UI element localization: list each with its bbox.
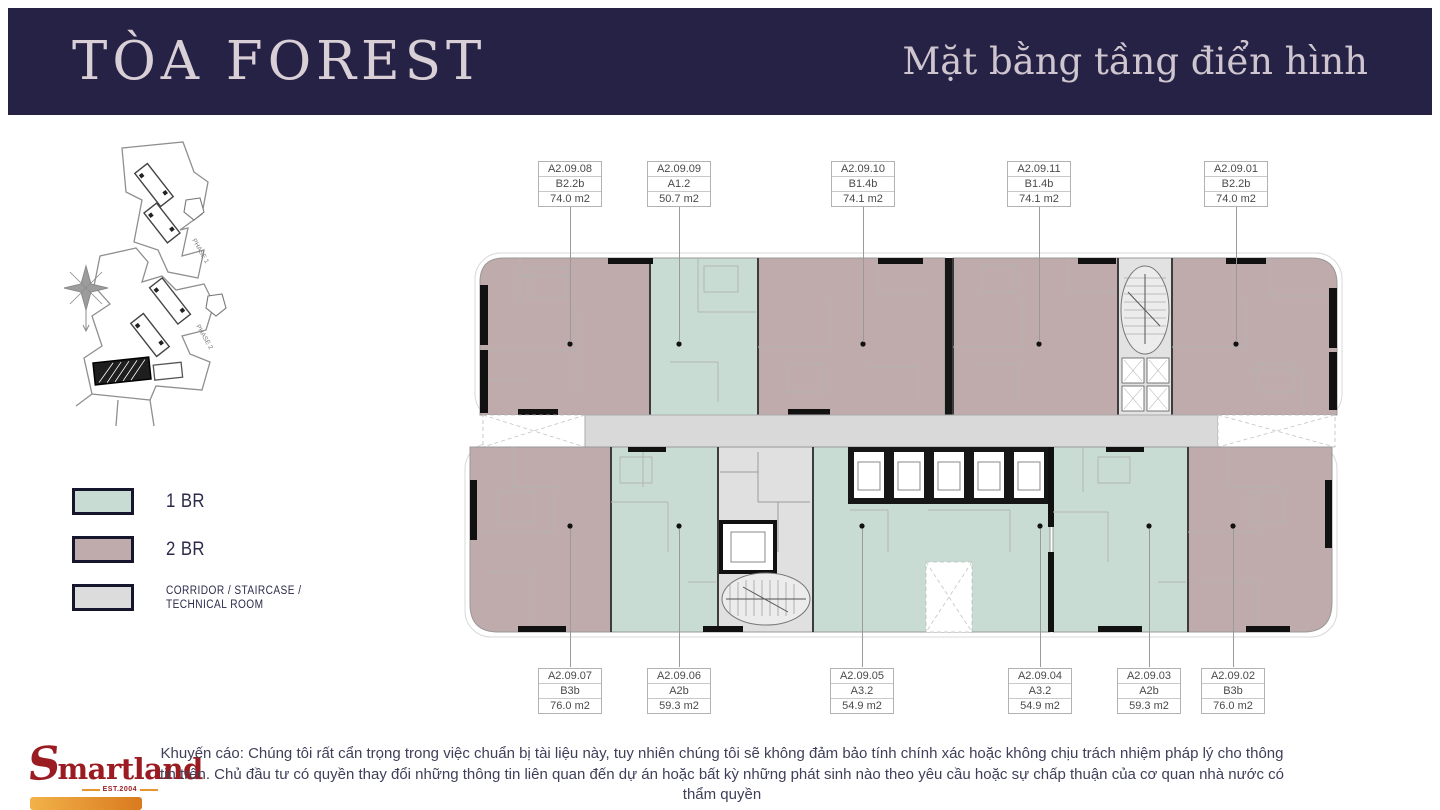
smartland-logo: Smartland EST.2004	[28, 737, 160, 793]
unit-A2-09-06	[611, 447, 718, 632]
leader-line	[570, 529, 571, 667]
unit-id: A2.09.07	[539, 669, 601, 684]
logo-orange-bar	[30, 797, 142, 810]
unit-label-A2-09-08: A2.09.08 B2.2b 74.0 m2	[538, 161, 602, 207]
unit-label-A2-09-09: A2.09.09 A1.2 50.7 m2	[647, 161, 711, 207]
legend-label-corridor: CORRIDOR / STAIRCASE / TECHNICAL ROOM	[166, 584, 320, 612]
unit-area: 54.9 m2	[831, 699, 893, 713]
unit-area: 54.9 m2	[1009, 699, 1071, 713]
unit-label-A2-09-05: A2.09.05 A3.2 54.9 m2	[830, 668, 894, 714]
unit-A2-09-01	[1172, 258, 1337, 415]
leader-line	[679, 206, 680, 342]
unit-id: A2.09.04	[1009, 669, 1071, 684]
unit-type: A3.2	[1009, 684, 1071, 699]
center-void	[926, 562, 972, 632]
legend-swatch-corridor	[72, 584, 134, 611]
unit-label-A2-09-01: A2.09.01 B2.2b 74.0 m2	[1204, 161, 1268, 207]
legend-swatch-1br	[72, 488, 134, 515]
page: TÒA FOREST Mặt bằng tầng điển hình PHASE…	[0, 0, 1440, 810]
unit-type: B1.4b	[832, 177, 894, 192]
unit-A2-09-07	[470, 447, 611, 632]
unit-area: 59.3 m2	[648, 699, 710, 713]
unit-area: 74.0 m2	[539, 192, 601, 206]
site-buildings-phase1: PHASE 1	[135, 164, 210, 266]
unit-A2-09-02	[1188, 447, 1332, 632]
unit-type: B3b	[1202, 684, 1264, 699]
header: TÒA FOREST Mặt bằng tầng điển hình	[8, 8, 1432, 115]
unit-type: B3b	[539, 684, 601, 699]
unit-label-A2-09-06: A2.09.06 A2b 59.3 m2	[647, 668, 711, 714]
unit-id: A2.09.09	[648, 162, 710, 177]
unit-label-A2-09-11: A2.09.11 B1.4b 74.1 m2	[1007, 161, 1071, 207]
unit-area: 74.0 m2	[1205, 192, 1267, 206]
page-title: TÒA FOREST	[72, 31, 486, 92]
unit-type: B2.2b	[539, 177, 601, 192]
unit-label-A2-09-02: A2.09.02 B3b 76.0 m2	[1201, 668, 1265, 714]
leader-line	[1236, 206, 1237, 342]
unit-type: B2.2b	[1205, 177, 1267, 192]
legend-label-2br: 2 BR	[166, 536, 205, 561]
leader-line	[570, 206, 571, 342]
unit-id: A2.09.11	[1008, 162, 1070, 177]
unit-label-A2-09-10: A2.09.10 B1.4b 74.1 m2	[831, 161, 895, 207]
legend: 1 BR 2 BR CORRIDOR / STAIRCASE / TECHNIC…	[72, 488, 341, 633]
phase2-label: PHASE 2	[194, 324, 214, 352]
leader-line	[1039, 206, 1040, 342]
corridor	[483, 415, 1335, 447]
unit-id: A2.09.01	[1205, 162, 1267, 177]
unit-id: A2.09.02	[1202, 669, 1264, 684]
page-subtitle: Mặt bằng tầng điển hình	[902, 40, 1368, 83]
legend-label-1br: 1 BR	[166, 488, 205, 513]
unit-label-A2-09-07: A2.09.07 B3b 76.0 m2	[538, 668, 602, 714]
unit-id: A2.09.08	[539, 162, 601, 177]
legend-item-corridor: CORRIDOR / STAIRCASE / TECHNICAL ROOM	[72, 584, 341, 612]
leader-line	[862, 529, 863, 667]
unit-area: 76.0 m2	[1202, 699, 1264, 713]
leader-line	[1233, 529, 1234, 667]
unit-area: 50.7 m2	[648, 192, 710, 206]
unit-id: A2.09.10	[832, 162, 894, 177]
unit-area: 76.0 m2	[539, 699, 601, 713]
unit-area: 74.1 m2	[1008, 192, 1070, 206]
highlighted-forest-tower	[93, 357, 151, 385]
est-text: EST.2004	[103, 786, 137, 793]
compass-icon	[64, 266, 108, 331]
floor-plan	[458, 252, 1363, 642]
elevator-bank	[848, 447, 1050, 504]
unit-type: A1.2	[648, 177, 710, 192]
site-buildings-phase2: PHASE 2	[93, 278, 226, 385]
leader-line	[863, 206, 864, 342]
legend-item-2br: 2 BR	[72, 536, 341, 563]
unit-type: A2b	[1118, 684, 1180, 699]
est-line-left	[82, 789, 100, 791]
legend-swatch-2br	[72, 536, 134, 563]
leader-line	[1149, 529, 1150, 667]
leader-line	[1040, 529, 1041, 667]
leader-line	[679, 529, 680, 667]
unit-id: A2.09.06	[648, 669, 710, 684]
unit-type: B1.4b	[1008, 177, 1070, 192]
unit-type: A3.2	[831, 684, 893, 699]
unit-id: A2.09.03	[1118, 669, 1180, 684]
unit-label-A2-09-04: A2.09.04 A3.2 54.9 m2	[1008, 668, 1072, 714]
phase1-label: PHASE 1	[190, 238, 210, 266]
legend-item-1br: 1 BR	[72, 488, 341, 515]
unit-label-A2-09-03: A2.09.03 A2b 59.3 m2	[1117, 668, 1181, 714]
unit-A2-09-11	[953, 258, 1118, 415]
site-key-plan: PHASE 1 PHASE 2	[58, 138, 258, 428]
unit-area: 59.3 m2	[1118, 699, 1180, 713]
unit-id: A2.09.05	[831, 669, 893, 684]
unit-A2-09-08	[480, 258, 650, 415]
unit-A2-09-03	[1053, 447, 1188, 632]
unit-A2-09-10	[758, 258, 945, 415]
disclaimer-text: Khuyến cáo: Chúng tôi rất cẩn trọng tron…	[152, 744, 1292, 806]
logo-s-glyph: S	[25, 735, 63, 791]
unit-area: 74.1 m2	[832, 192, 894, 206]
core-wall	[945, 258, 953, 415]
unit-type: A2b	[648, 684, 710, 699]
